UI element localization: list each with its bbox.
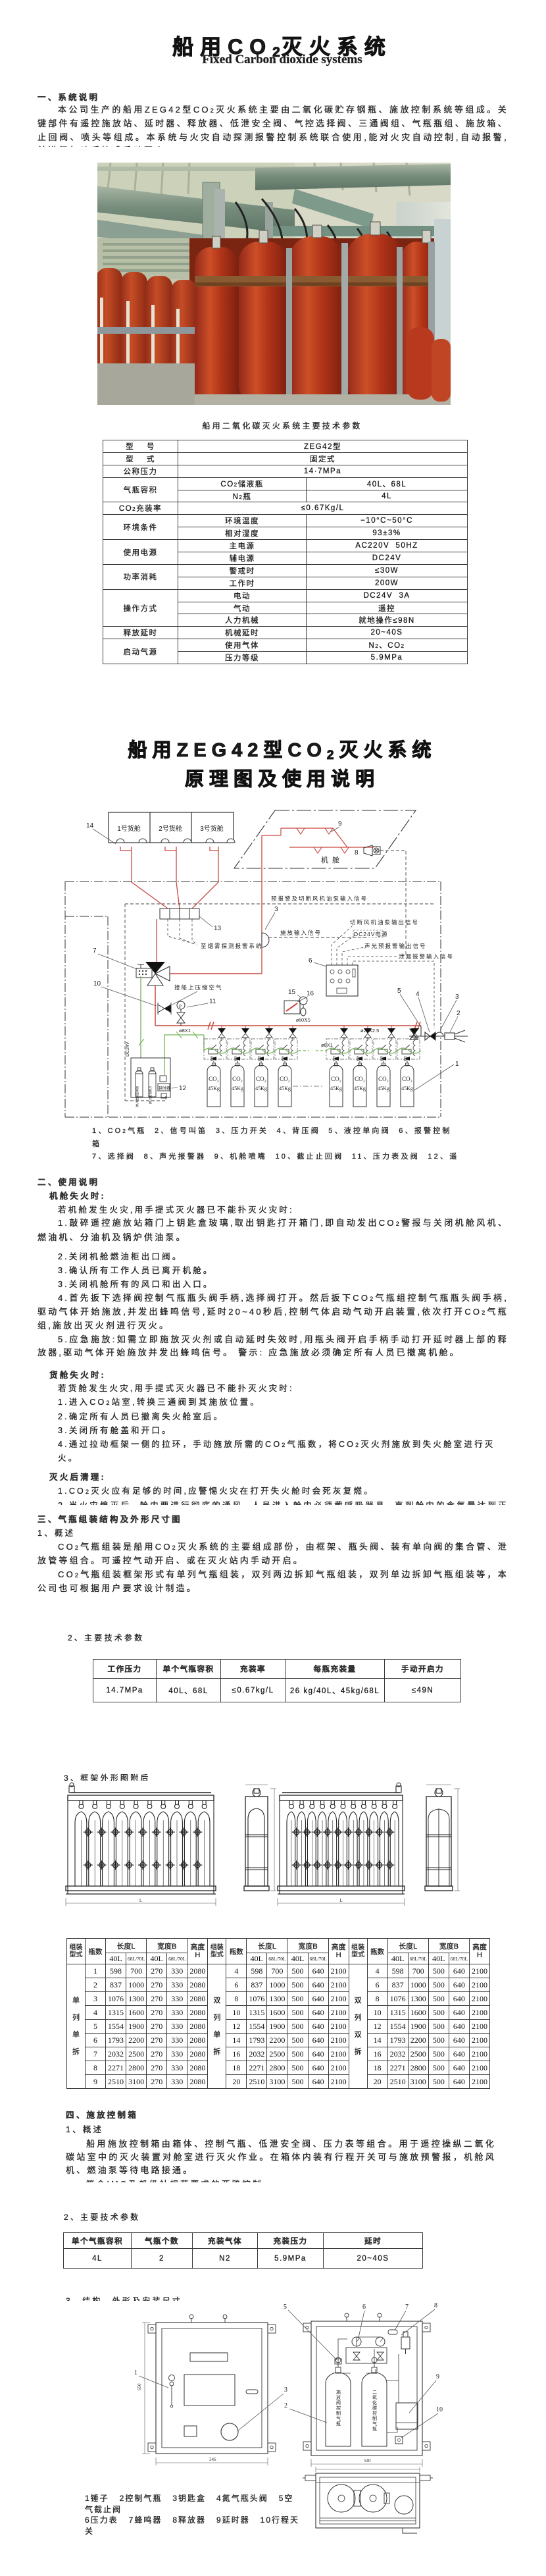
svg-text:2号货舱: 2号货舱 (159, 824, 182, 833)
svg-text:2: 2 (284, 2402, 287, 2409)
svg-text:650: 650 (137, 2383, 142, 2390)
svg-text:7: 7 (405, 2303, 409, 2311)
svg-text:泄漏报警输入信号: 泄漏报警输入信号 (399, 953, 454, 960)
svg-text:施放输入信号: 施放输入信号 (280, 930, 322, 936)
svg-text:45Kg: 45Kg (401, 1086, 413, 1091)
svg-text:切断风机油泵输出信号: 切断风机油泵输出信号 (350, 919, 419, 926)
svg-text:8: 8 (355, 849, 359, 856)
svg-text:CO₂: CO₂ (280, 1076, 290, 1082)
svg-text:10: 10 (93, 980, 101, 987)
svg-text:10: 10 (436, 2406, 443, 2413)
svg-text:声光预报警输出信号: 声光预报警输出信号 (364, 943, 427, 949)
svg-text:CO₂: CO₂ (402, 1076, 412, 1082)
svg-text:接船上压缩空气: 接船上压缩空气 (174, 984, 223, 991)
svg-text:CO₂: CO₂ (331, 1076, 341, 1082)
svg-text:16: 16 (307, 990, 314, 997)
svg-text:45Kg: 45Kg (378, 1086, 389, 1091)
svg-text:1: 1 (455, 1061, 459, 1068)
svg-text:14: 14 (86, 822, 94, 829)
svg-text:9: 9 (436, 2373, 439, 2380)
svg-text:45Kg: 45Kg (232, 1086, 243, 1091)
svg-text:CO₂: CO₂ (232, 1076, 243, 1082)
svg-text:5: 5 (284, 2303, 287, 2311)
svg-text:45Kg: 45Kg (330, 1086, 342, 1091)
svg-text:540: 540 (364, 2458, 371, 2463)
svg-text:机舱: 机舱 (321, 855, 343, 864)
svg-text:二氧化碳控制气瓶: 二氧化碳控制气瓶 (372, 2390, 378, 2432)
svg-text:6: 6 (362, 2303, 366, 2311)
svg-text:L: L (139, 1898, 142, 1903)
svg-text:3号货舱: 3号货舱 (200, 824, 224, 833)
svg-text:8: 8 (434, 2302, 437, 2309)
svg-text:CO₂: CO₂ (355, 1076, 365, 1082)
svg-text:施放阀控制气瓶: 施放阀控制气瓶 (136, 1086, 139, 1108)
svg-text:45Kg: 45Kg (255, 1086, 267, 1091)
svg-text:DC24V电源: DC24V电源 (354, 931, 387, 937)
svg-text:ø8X1: ø8X1 (321, 1042, 333, 1048)
svg-text:5: 5 (397, 987, 401, 995)
svg-text:6: 6 (309, 957, 312, 964)
svg-text:施放阀控制气瓶: 施放阀控制气瓶 (336, 2389, 341, 2427)
svg-text:ø60X5: ø60X5 (296, 1017, 310, 1023)
svg-text:CO₂: CO₂ (256, 1076, 266, 1082)
svg-text:ø8X1: ø8X1 (179, 1028, 191, 1034)
svg-text:45Kg: 45Kg (208, 1086, 220, 1091)
svg-text:3: 3 (455, 993, 459, 1001)
svg-text:346: 346 (209, 2457, 216, 2462)
svg-text:4: 4 (416, 991, 420, 998)
svg-text:45Kg: 45Kg (354, 1086, 366, 1091)
svg-text:DC24V: DC24V (126, 1041, 130, 1057)
svg-text:气瓶控制气瓶: 气瓶控制气瓶 (149, 1086, 153, 1105)
svg-text:CO₂: CO₂ (378, 1076, 389, 1082)
svg-text:3: 3 (274, 906, 278, 913)
svg-text:12: 12 (179, 1085, 187, 1092)
svg-text:1: 1 (134, 2369, 137, 2377)
svg-text:9: 9 (338, 820, 342, 828)
svg-text:CO₂: CO₂ (209, 1076, 219, 1082)
svg-text:延时器: 延时器 (159, 1086, 170, 1091)
svg-text:L: L (339, 1898, 342, 1903)
svg-text:2: 2 (457, 1010, 460, 1017)
svg-text:3: 3 (284, 2386, 287, 2394)
svg-text:7: 7 (93, 947, 97, 955)
svg-text:预报警及切断风机油泵输入信号: 预报警及切断风机油泵输入信号 (271, 895, 368, 902)
svg-text:13: 13 (214, 925, 222, 932)
svg-text:P: P (179, 1004, 182, 1009)
svg-text:45Kg: 45Kg (279, 1086, 291, 1091)
svg-text:至烟雾探测报警系统: 至烟雾探测报警系统 (201, 943, 263, 949)
svg-text:11: 11 (209, 998, 216, 1005)
svg-text:1号货舱: 1号货舱 (117, 824, 141, 833)
svg-text:15: 15 (288, 989, 296, 996)
